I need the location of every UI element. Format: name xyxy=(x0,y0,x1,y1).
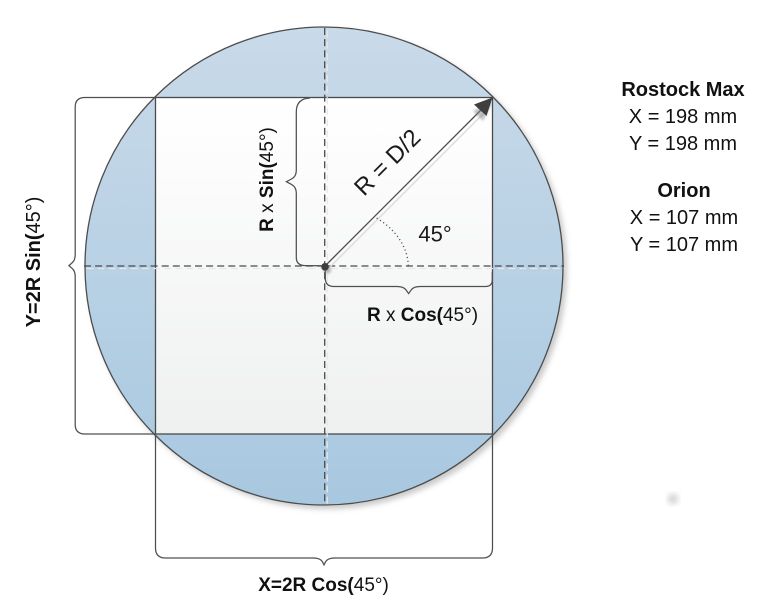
svg-text:Y = 107 mm: Y = 107 mm xyxy=(630,234,738,256)
svg-text:Orion: Orion xyxy=(657,180,710,202)
svg-text:X = 198 mm: X = 198 mm xyxy=(629,106,737,128)
svg-text:X=2R Cos(45°): X=2R Cos(45°) xyxy=(258,575,389,596)
svg-text:45°: 45° xyxy=(418,222,451,247)
svg-text:R x Cos(45°): R x Cos(45°) xyxy=(367,305,478,326)
svg-text:Y = 198 mm: Y = 198 mm xyxy=(629,133,737,155)
svg-text:R x Sin(45°): R x Sin(45°) xyxy=(257,127,278,232)
svg-text:Y=2R Sin(45°): Y=2R Sin(45°) xyxy=(23,197,45,328)
svg-text:X = 107 mm: X = 107 mm xyxy=(630,207,738,229)
svg-text:Rostock Max: Rostock Max xyxy=(621,79,744,101)
